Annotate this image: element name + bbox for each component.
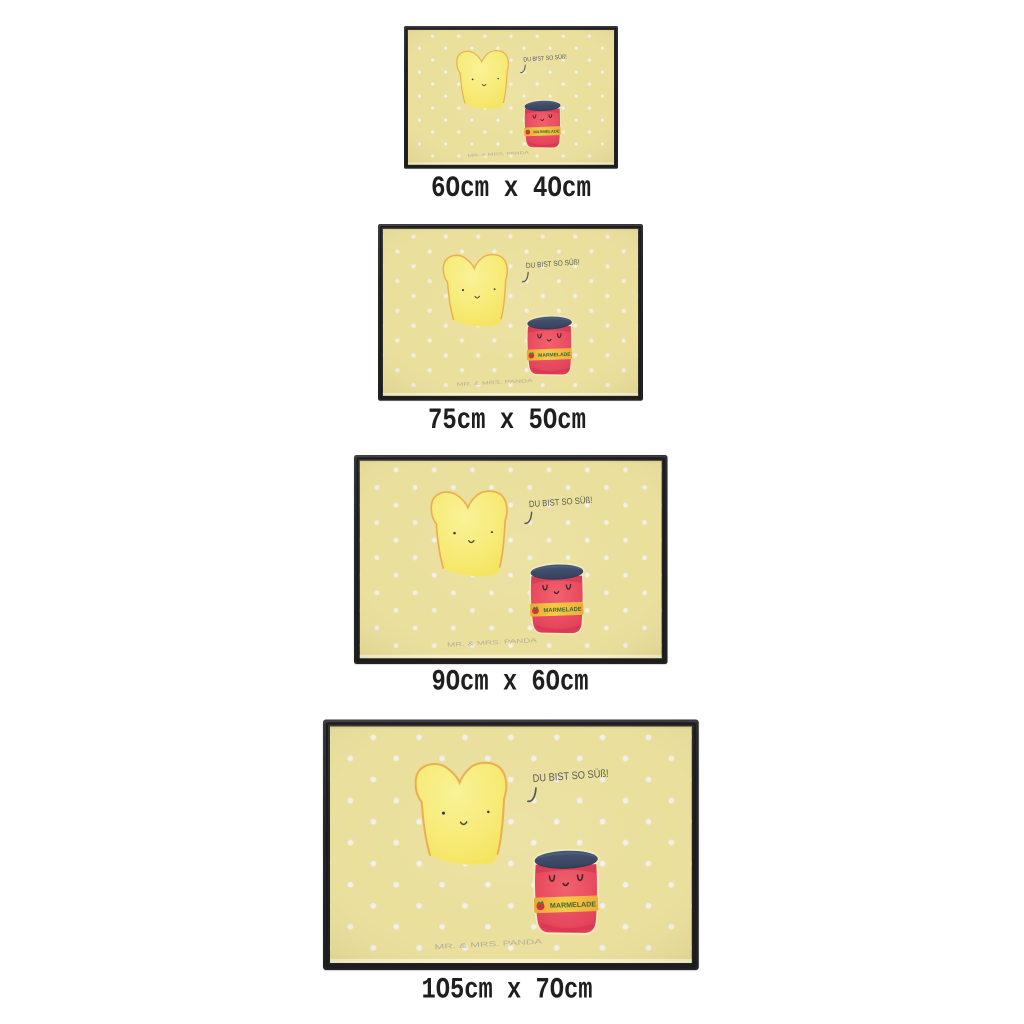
svg-text:9Ocm x 6Ocm: 9Ocm x 6Ocm bbox=[432, 665, 589, 699]
svg-text:75cm x 5Ocm: 75cm x 5Ocm bbox=[428, 403, 586, 437]
svg-text:6Ocm x 4Ocm: 6Ocm x 4Ocm bbox=[431, 171, 591, 205]
svg-text:1O5cm x 7Ocm: 1O5cm x 7Ocm bbox=[422, 973, 593, 1007]
